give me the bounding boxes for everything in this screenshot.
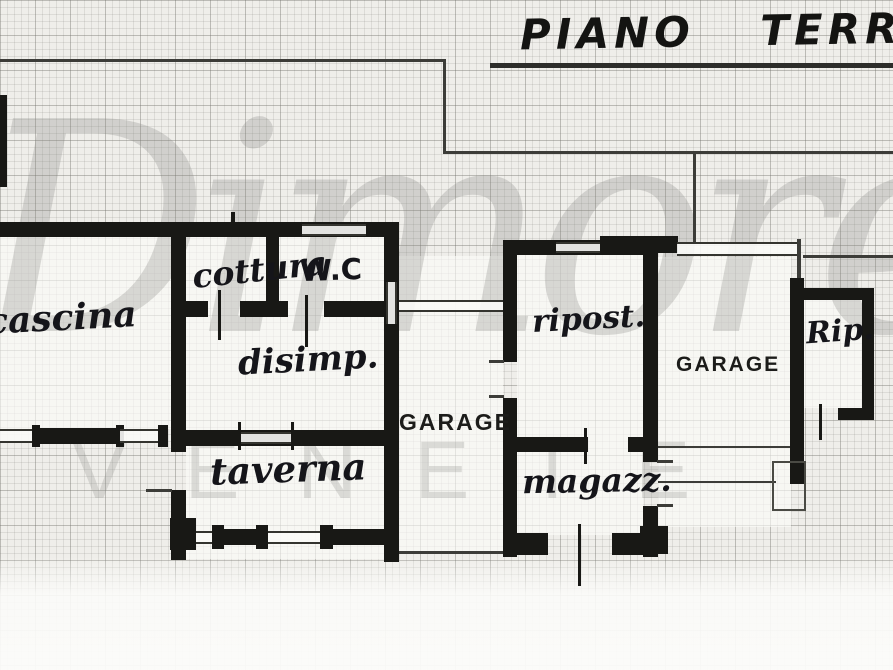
door-tick-cascina (146, 489, 172, 492)
room-label-ripostiglio: ripost. (531, 298, 646, 340)
wall-middle-right-upper (643, 240, 658, 462)
garage-right-opening-line-a (658, 446, 790, 448)
room-label-magazzino: magazz. (522, 460, 672, 502)
window-tick (238, 422, 241, 450)
wall-ripost-magazz-a (503, 437, 588, 452)
window-cascina-right (120, 429, 162, 443)
boundary-line-step (443, 59, 446, 154)
door-tick (489, 360, 504, 363)
boundary-line-right (443, 151, 893, 154)
wall-corner-taverna (170, 518, 196, 550)
room-label-disimpegno: disimp. (237, 336, 379, 383)
wall-garage-right-top-thick (600, 236, 678, 253)
wall-cascina-divider-upper (171, 222, 186, 452)
window-left-building-right (386, 282, 397, 324)
wall-rip-right (862, 288, 874, 420)
door-leaf-magazz (584, 428, 587, 464)
window-taverna-bottom-b (268, 531, 322, 544)
wall-ripost-magazz-b (628, 437, 658, 452)
wall-disimpegno-top-b (240, 301, 288, 317)
fence-line-top-right (803, 255, 893, 258)
window-post (32, 425, 40, 447)
opening-garage-main-top (399, 300, 503, 312)
wall-garage-right-east (790, 278, 804, 484)
window-post (256, 525, 268, 549)
wall-rip-bottom (838, 408, 874, 420)
door-tick (489, 395, 504, 398)
wall-left-building-right (384, 222, 399, 562)
room-label-garage-main: GARAGE (399, 409, 503, 436)
room-label-rip: Rip. (805, 312, 875, 352)
door-leaf-magazz-exit (578, 524, 581, 586)
boundary-connector (693, 151, 696, 243)
left-edge-wall-stub (0, 95, 7, 187)
garage-right-opening-line-b (658, 481, 776, 483)
wall-taverna-bottom-a (222, 529, 258, 545)
wall-garage-right-top-light (677, 242, 798, 256)
wall-cascina-bottom (36, 428, 120, 444)
wall-magazz-bottom-left (503, 533, 548, 555)
room-label-wc: W.C (299, 252, 362, 288)
garage-main-door-sill (399, 551, 503, 554)
wall-corner-garage-right (640, 526, 668, 554)
window-post (158, 425, 168, 447)
floor-plan: Dimore VENETE PIANO TERRA (0, 0, 893, 670)
wall-tick-chimney (231, 212, 235, 228)
room-label-taverna: taverna (209, 444, 367, 493)
room-label-cascina: cascina (0, 293, 138, 343)
title-underline (490, 63, 893, 68)
garage-right-pillar-outline (772, 461, 806, 511)
door-tick (657, 504, 673, 507)
wall-taverna-bottom-b (332, 529, 399, 545)
window-top-wc (302, 224, 366, 236)
door-leaf-rip (819, 404, 822, 440)
window-taverna-top (240, 432, 294, 444)
window-cascina-left (0, 429, 36, 443)
boundary-line-top (0, 59, 446, 62)
wall-disimpegno-top-a (186, 301, 208, 317)
door-leaf-cottura (218, 290, 221, 340)
scan-fade (0, 556, 893, 670)
wall-middle-left-upper (503, 240, 517, 362)
wall-rip-stub (797, 239, 801, 279)
room-label-garage-right: GARAGE (676, 353, 780, 377)
plan-title: PIANO TERRA (520, 2, 893, 60)
